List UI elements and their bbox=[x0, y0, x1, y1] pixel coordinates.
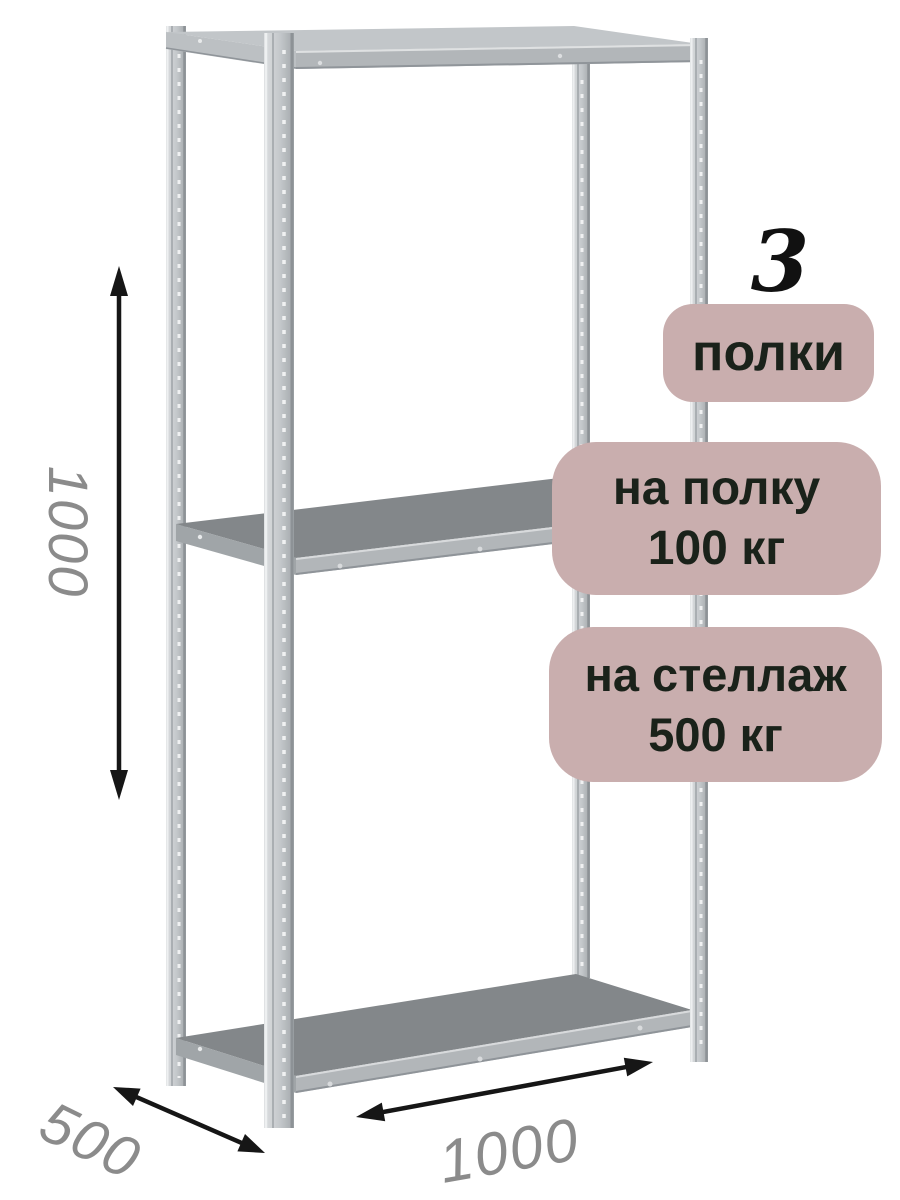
per-shelf-load-badge: на полку 100 кг bbox=[552, 442, 881, 595]
per-shelf-load-line2: 100 кг bbox=[648, 519, 785, 579]
rack-shelf-bottom bbox=[176, 974, 692, 1093]
rack-post-front-left bbox=[264, 33, 294, 1128]
shelving-rack-illustration bbox=[0, 0, 900, 1200]
shelf-count-label: полки bbox=[692, 323, 845, 383]
shelf-count-number: 3 bbox=[700, 212, 860, 312]
shelf-count-badge: полки bbox=[663, 304, 874, 402]
per-rack-load-line1: на стеллаж bbox=[584, 645, 846, 704]
rack-shelf-top bbox=[166, 26, 700, 69]
product-card: 1000 500 1000 3 полки на полку 100 кг на… bbox=[0, 0, 900, 1200]
height-dimension-arrow bbox=[110, 266, 128, 800]
height-dimension-label: 1000 bbox=[36, 450, 96, 614]
per-rack-load-badge: на стеллаж 500 кг bbox=[549, 627, 882, 782]
per-shelf-load-line1: на полку bbox=[613, 459, 820, 519]
rack-post-back-left bbox=[166, 26, 186, 1086]
per-rack-load-line2: 500 кг bbox=[648, 705, 783, 764]
